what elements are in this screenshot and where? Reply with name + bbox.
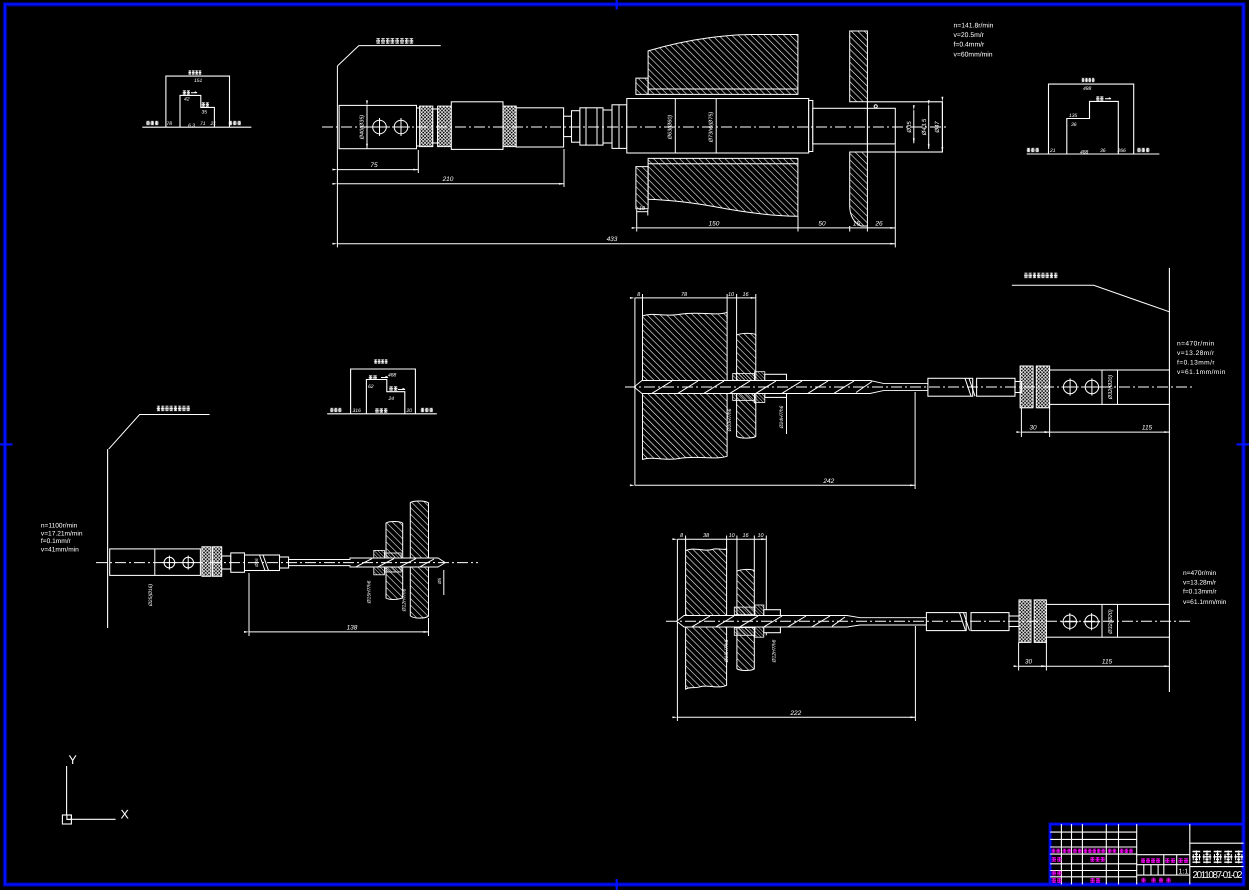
svg-text:20: 20 <box>406 408 413 414</box>
svg-text:138: 138 <box>347 624 358 631</box>
svg-text:150: 150 <box>709 220 720 227</box>
svg-text:Ø10H7/h6: Ø10H7/h6 <box>727 408 733 432</box>
svg-text:222: 222 <box>789 710 801 717</box>
svg-text:v=20.5m/r: v=20.5m/r <box>954 32 985 39</box>
svg-text:316: 316 <box>353 408 362 414</box>
svg-text:15: 15 <box>853 220 861 227</box>
svg-text:50: 50 <box>818 220 826 227</box>
svg-text:488: 488 <box>388 373 397 379</box>
svg-text:v=13.28m/r: v=13.28m/r <box>1183 579 1217 586</box>
svg-text:38: 38 <box>703 533 710 539</box>
svg-text:488: 488 <box>1080 150 1089 156</box>
svg-text:266: 266 <box>1117 148 1127 154</box>
svg-text:Ø15H7/h6: Ø15H7/h6 <box>724 639 730 663</box>
svg-text:Ø25(Ø16): Ø25(Ø16) <box>148 584 154 608</box>
svg-text:Ø24H7/h6: Ø24H7/h6 <box>779 405 785 429</box>
svg-text:10: 10 <box>728 292 735 298</box>
svg-text:f=0.13mm/r: f=0.13mm/r <box>1183 589 1217 596</box>
svg-text:10: 10 <box>639 206 646 212</box>
svg-text:6.3: 6.3 <box>188 123 195 129</box>
svg-text:210: 210 <box>442 176 454 183</box>
svg-text:f=0.1mm/r: f=0.1mm/r <box>41 538 72 545</box>
svg-text:71: 71 <box>200 121 206 127</box>
svg-text:36: 36 <box>1071 122 1077 128</box>
svg-text:433: 433 <box>607 236 618 243</box>
svg-text:26: 26 <box>874 220 883 227</box>
svg-text:n=1100r/min: n=1100r/min <box>41 523 78 530</box>
svg-text:f=0.13mm/r: f=0.13mm/r <box>1177 360 1215 367</box>
svg-text:n=470r/min: n=470r/min <box>1183 570 1217 577</box>
svg-text:Ø5: Ø5 <box>437 578 442 586</box>
svg-text:v=61.1mm/min: v=61.1mm/min <box>1183 599 1227 606</box>
svg-text:10: 10 <box>757 533 764 539</box>
svg-text:n=470r/min: n=470r/min <box>1177 341 1215 348</box>
svg-text:2011087-01-02: 2011087-01-02 <box>1193 870 1243 881</box>
svg-text:35: 35 <box>202 110 208 116</box>
svg-text:16: 16 <box>742 533 749 539</box>
svg-text:v=41mm/min: v=41mm/min <box>41 546 79 553</box>
svg-text:v=17.21m/min: v=17.21m/min <box>41 530 83 537</box>
svg-text:10: 10 <box>729 533 736 539</box>
svg-text:78: 78 <box>681 292 688 298</box>
svg-text:135: 135 <box>1069 113 1078 119</box>
svg-text:n=141.8r/min: n=141.8r/min <box>954 22 994 29</box>
svg-text:v=60mm/min: v=60mm/min <box>954 52 993 59</box>
svg-text:v=13.28m/r: v=13.28m/r <box>1177 350 1215 357</box>
svg-text:115: 115 <box>1102 659 1113 666</box>
svg-text:115: 115 <box>1142 425 1153 432</box>
svg-text:75: 75 <box>370 162 378 169</box>
svg-text:151: 151 <box>194 78 203 84</box>
svg-text:488: 488 <box>1083 86 1092 92</box>
svg-text:16: 16 <box>742 292 749 298</box>
svg-text:42: 42 <box>184 97 190 103</box>
svg-text:24: 24 <box>388 396 395 402</box>
svg-text:X: X <box>121 808 130 822</box>
svg-text:Ø15H7/h6: Ø15H7/h6 <box>367 580 373 604</box>
svg-text:21: 21 <box>1049 148 1056 154</box>
svg-text:v=61.1mm/min: v=61.1mm/min <box>1177 369 1226 376</box>
svg-text:30: 30 <box>1029 425 1037 432</box>
svg-text:78: 78 <box>167 121 173 127</box>
svg-text:30: 30 <box>1025 659 1033 666</box>
svg-text:36: 36 <box>1100 148 1106 154</box>
svg-text:62: 62 <box>368 384 374 390</box>
svg-text:f=0.4mm/r: f=0.4mm/r <box>954 42 986 49</box>
svg-text:Ø32(Ø20): Ø32(Ø20) <box>1108 609 1114 635</box>
svg-text:242: 242 <box>822 478 834 485</box>
svg-text:Ø12H7/h6: Ø12H7/h6 <box>772 639 778 663</box>
svg-text:1:1: 1:1 <box>1179 869 1189 876</box>
svg-text:Y: Y <box>69 753 78 767</box>
svg-text:Ø12H7/h6: Ø12H7/h6 <box>402 588 408 612</box>
svg-text:21: 21 <box>210 121 217 127</box>
